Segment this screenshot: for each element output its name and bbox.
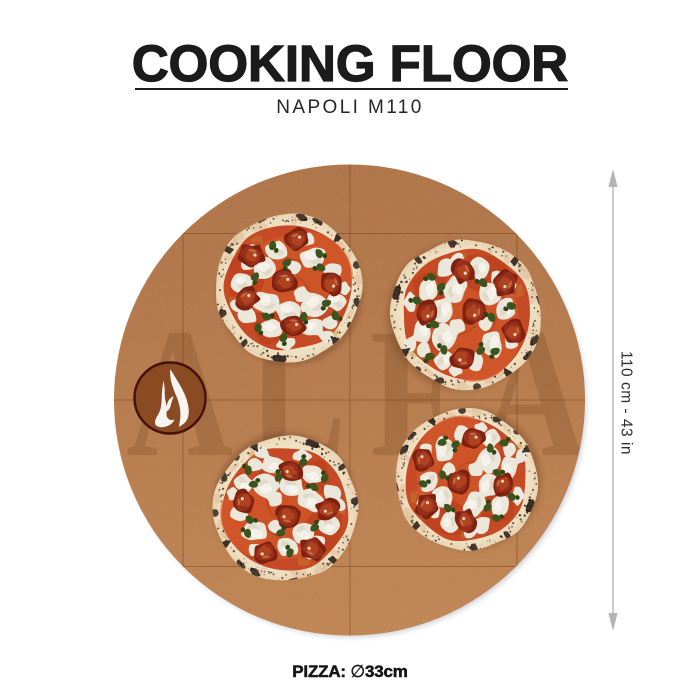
svg-text:110 cm - 43 in: 110 cm - 43 in	[618, 351, 635, 455]
